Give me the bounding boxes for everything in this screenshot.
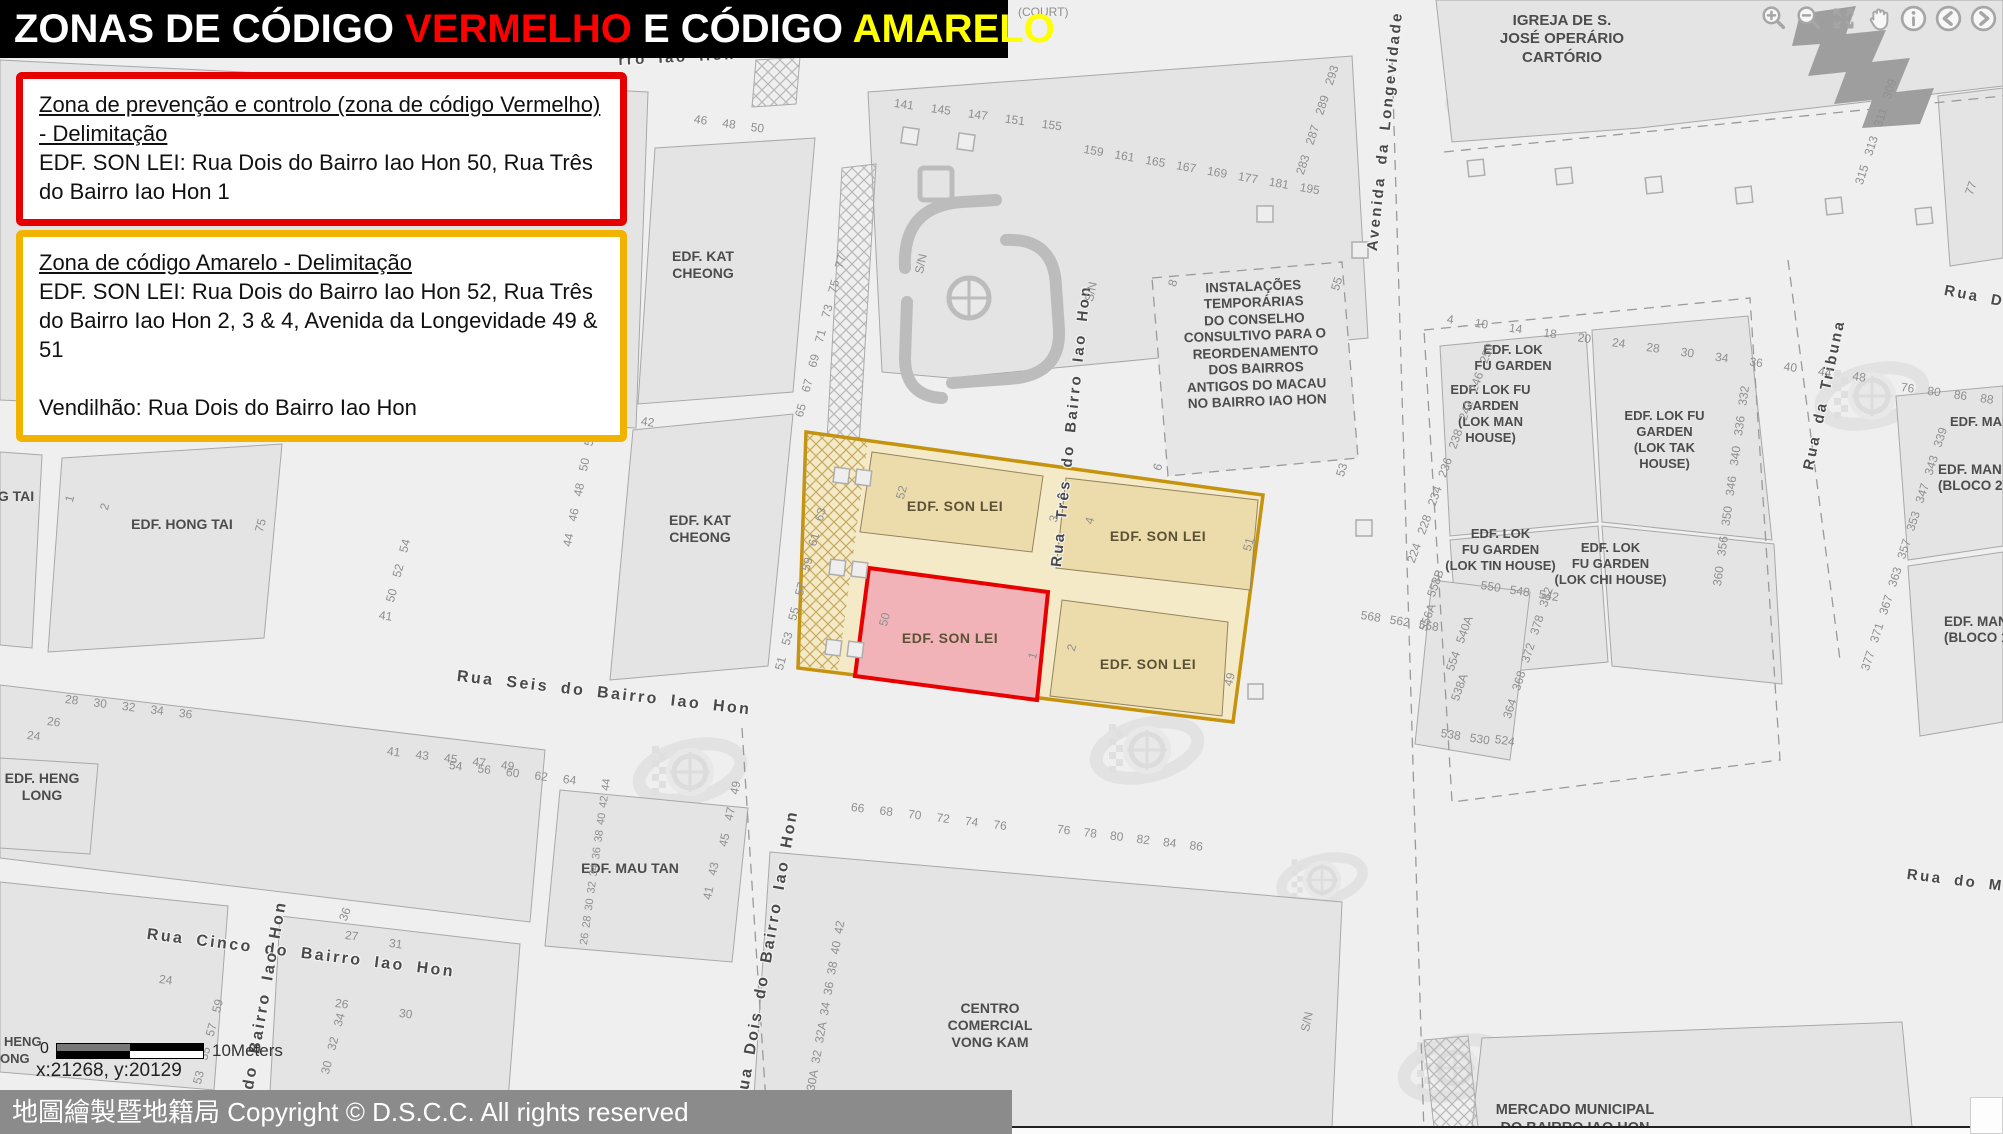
label-igreja: IGREJA DE S. JOSÉ OPERÁRIO CARTÓRIO: [1462, 12, 1662, 67]
lot-numbers: 30: [398, 1006, 413, 1022]
lot-numbers: 31: [388, 936, 403, 952]
yellow-zone-heading: Zona de código Amarelo - Delimitação: [39, 250, 412, 275]
scale-zero: 0: [40, 1040, 49, 1058]
title-amarelo: AMARELO: [853, 7, 1055, 51]
scale-label: 10Meters: [212, 1041, 283, 1061]
scale-bar-graphic: [56, 1043, 204, 1059]
label-hong-tai: EDF. HONG TAI: [112, 516, 252, 533]
title-middle: E CÓDIGO: [632, 7, 853, 51]
yellow-zone-vendor: Vendilhão: Rua Dois do Bairro Iao Hon: [39, 393, 604, 422]
zoom-in-icon[interactable]: [1758, 3, 1789, 34]
label-son-lei-3: EDF. SON LEI: [890, 630, 1010, 647]
yellow-zone-legend: Zona de código Amarelo - Delimitação EDF…: [16, 230, 627, 442]
lot-numbers: 27: [344, 928, 359, 944]
label-man-on-1: EDF. MAN O (BLOCO 1): [1944, 614, 2003, 647]
pan-hand-icon[interactable]: [1863, 3, 1894, 34]
label-centro-vong-kam: CENTRO COMERCIAL VONG KAM: [920, 1000, 1060, 1051]
label-heng-long: EDF. HENG LONG: [4, 770, 80, 804]
label-instalacoes: INSTALAÇÕES TEMPORÁRIAS DO CONSELHO CONS…: [1162, 276, 1348, 414]
info-icon[interactable]: [1898, 3, 1929, 34]
lot-numbers: 26: [46, 714, 61, 730]
label-son-lei-1: EDF. SON LEI: [895, 498, 1015, 515]
label-mau-tan: EDF. MAU TAN: [560, 860, 700, 877]
label-son-lei-2: EDF. SON LEI: [1098, 528, 1218, 545]
label-kat-cheong-north: EDF. KAT CHEONG: [648, 248, 758, 282]
label-son-lei-4: EDF. SON LEI: [1088, 656, 1208, 673]
red-zone-heading: Zona de prevenção e controlo (zona de có…: [39, 92, 600, 146]
lot-numbers: 41: [378, 608, 393, 624]
corner-control[interactable]: [1970, 1097, 2003, 1134]
label-man-on-fragment: EDF. MAN: [1950, 414, 2003, 430]
lot-numbers: 24: [158, 972, 173, 988]
red-zone-legend: Zona de prevenção e controlo (zona de có…: [16, 72, 627, 226]
label-g-tai-fragment: G TAI: [0, 488, 46, 505]
label-lok-man: EDF. LOK FU GARDEN (LOK MAN HOUSE): [1428, 382, 1553, 445]
status-bar: 地圖繪製暨地籍局 Copyright © D.S.C.C. All rights…: [0, 1090, 1012, 1134]
lot-numbers: 24: [26, 728, 41, 744]
label-man-on-2: EDF. MAN O (BLOCO 2): [1938, 462, 2003, 495]
cursor-coordinates: x:21268, y:20129: [36, 1060, 182, 1082]
title-vermelho: VERMELHO: [405, 7, 632, 51]
page-title: ZONAS DE CÓDIGO VERMELHO E CÓDIGO AMAREL…: [0, 0, 1008, 58]
label-lok-chi: EDF. LOK FU GARDEN (LOK CHI HOUSE): [1538, 540, 1683, 588]
copyright-text: 地圖繪製暨地籍局 Copyright © D.S.C.C. All rights…: [12, 1097, 689, 1127]
map-frame-strip: [1010, 1128, 2003, 1134]
previous-extent-icon[interactable]: [1933, 3, 1964, 34]
lot-numbers: 26: [334, 996, 349, 1012]
full-extent-icon[interactable]: [1828, 3, 1859, 34]
label-lok-tak: EDF. LOK FU GARDEN (LOK TAK HOUSE): [1602, 408, 1727, 471]
map-toolbar: [1758, 3, 1999, 34]
lot-numbers: 42: [640, 414, 655, 430]
zoom-out-icon[interactable]: [1793, 3, 1824, 34]
label-kat-cheong-south: EDF. KAT CHEONG: [645, 512, 755, 546]
red-zone-description: EDF. SON LEI: Rua Dois do Bairro Iao Hon…: [39, 148, 604, 206]
map-application: IGREJA DE S. JOSÉ OPERÁRIO CARTÓRIO INST…: [0, 0, 2003, 1134]
lot-numbers: 524: [1494, 732, 1516, 749]
title-prefix: ZONAS DE CÓDIGO: [14, 7, 405, 51]
next-extent-icon[interactable]: [1968, 3, 1999, 34]
yellow-zone-description: EDF. SON LEI: Rua Dois do Bairro Iao Hon…: [39, 277, 604, 364]
